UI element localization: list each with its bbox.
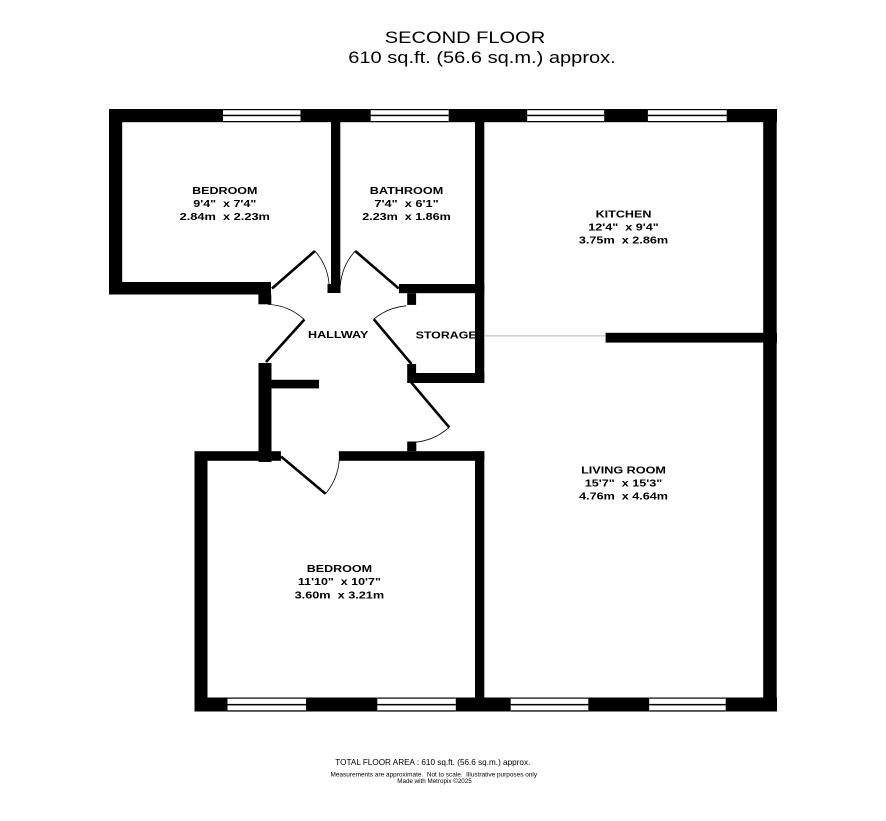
svg-text:STORAGE: STORAGE: [416, 331, 477, 342]
svg-text:TOTAL FLOOR AREA : 610 sq.ft.: TOTAL FLOOR AREA : 610 sq.ft. (56.6 sq.m…: [335, 758, 530, 767]
svg-text:15'7" x 15'3": 15'7" x 15'3": [585, 479, 663, 490]
svg-text:BATHROOM: BATHROOM: [370, 186, 444, 197]
svg-text:4.76m x 4.64m: 4.76m x 4.64m: [579, 492, 668, 503]
svg-text:2.23m x 1.86m: 2.23m x 1.86m: [362, 212, 451, 223]
svg-text:9'4" x 7'4": 9'4" x 7'4": [193, 199, 256, 210]
svg-text:11'10" x 10'7": 11'10" x 10'7": [298, 577, 381, 588]
svg-text:610 sq.ft. (56.6 sq.m.) approx: 610 sq.ft. (56.6 sq.m.) approx.: [348, 48, 616, 67]
svg-text:3.75m x 2.86m: 3.75m x 2.86m: [579, 236, 668, 247]
svg-text:KITCHEN: KITCHEN: [596, 210, 652, 221]
svg-text:12'4" x 9'4": 12'4" x 9'4": [588, 223, 659, 234]
svg-text:BEDROOM: BEDROOM: [307, 564, 372, 575]
svg-text:2.84m x 2.23m: 2.84m x 2.23m: [180, 212, 270, 223]
svg-text:SECOND FLOOR: SECOND FLOOR: [385, 28, 546, 47]
svg-text:3.60m x 3.21m: 3.60m x 3.21m: [295, 590, 385, 601]
svg-text:BEDROOM: BEDROOM: [192, 186, 257, 197]
svg-text:LIVING ROOM: LIVING ROOM: [581, 466, 666, 477]
svg-text:HALLWAY: HALLWAY: [308, 330, 369, 341]
svg-text:7'4" x 6'1": 7'4" x 6'1": [374, 199, 439, 210]
svg-text:Made with Metropix ©2025: Made with Metropix ©2025: [397, 777, 472, 785]
